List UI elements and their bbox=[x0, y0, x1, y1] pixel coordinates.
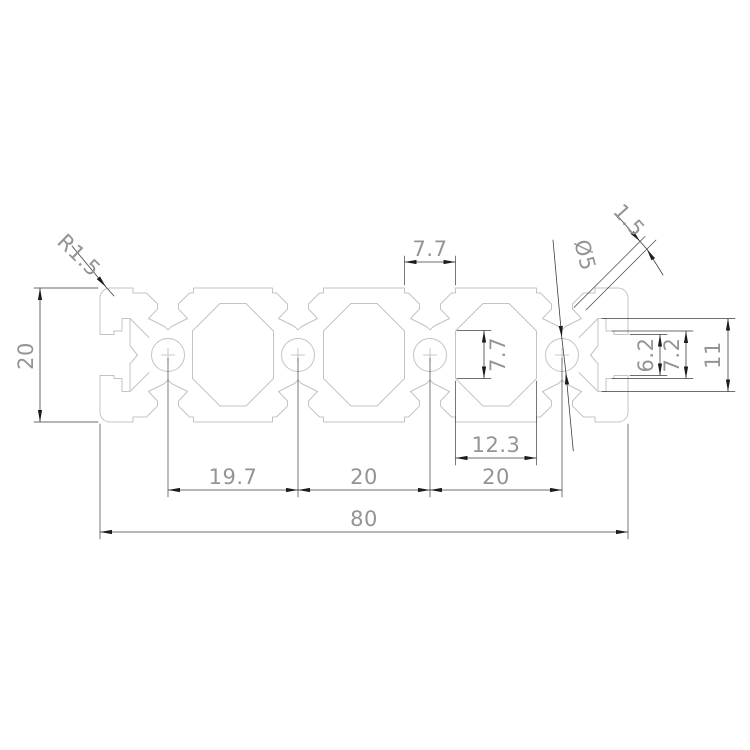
dimension-labels: 20 R1.5 7.7 Ø5 1.5 7.7 6.2 7.2 11 12.3 1… bbox=[14, 199, 725, 531]
profile-end-webs bbox=[130, 319, 598, 392]
extension-lines bbox=[34, 237, 735, 540]
dim-label-hole-diameter: Ø5 bbox=[569, 237, 600, 273]
drawing-canvas: 20 R1.5 7.7 Ø5 1.5 7.7 6.2 7.2 11 12.3 1… bbox=[0, 0, 750, 750]
dim-label-pitch-20a: 20 bbox=[350, 465, 378, 489]
dim-label-end-outer-11: 11 bbox=[701, 341, 725, 369]
dim-label-wall-thickness: 1.5 bbox=[608, 199, 649, 241]
dimension-lines bbox=[40, 214, 728, 532]
dim-label-pitch-20b: 20 bbox=[482, 465, 510, 489]
dim-label-end-mouth-62: 6.2 bbox=[634, 338, 658, 373]
profile-cavity-octagon-1 bbox=[193, 304, 274, 407]
dim-label-end-inner-72: 7.2 bbox=[660, 338, 684, 373]
dim-label-height-20: 20 bbox=[14, 342, 38, 370]
dim-label-slot-mouth-77: 7.7 bbox=[413, 237, 448, 261]
profile-outer-contour bbox=[100, 288, 628, 422]
dim-label-cavity-height-77: 7.7 bbox=[486, 337, 510, 372]
extrusion-profile-outline bbox=[100, 288, 628, 422]
technical-drawing: 20 R1.5 7.7 Ø5 1.5 7.7 6.2 7.2 11 12.3 1… bbox=[0, 0, 750, 750]
leader-hole-diameter bbox=[553, 240, 573, 451]
dim-label-cavity-width-123: 12.3 bbox=[472, 433, 521, 457]
profile-cavity-octagon-2 bbox=[324, 304, 405, 407]
dim-label-pitch-197: 19.7 bbox=[209, 465, 258, 489]
dim-label-corner-radius: R1.5 bbox=[53, 229, 106, 281]
dim-label-overall-80: 80 bbox=[350, 507, 378, 531]
